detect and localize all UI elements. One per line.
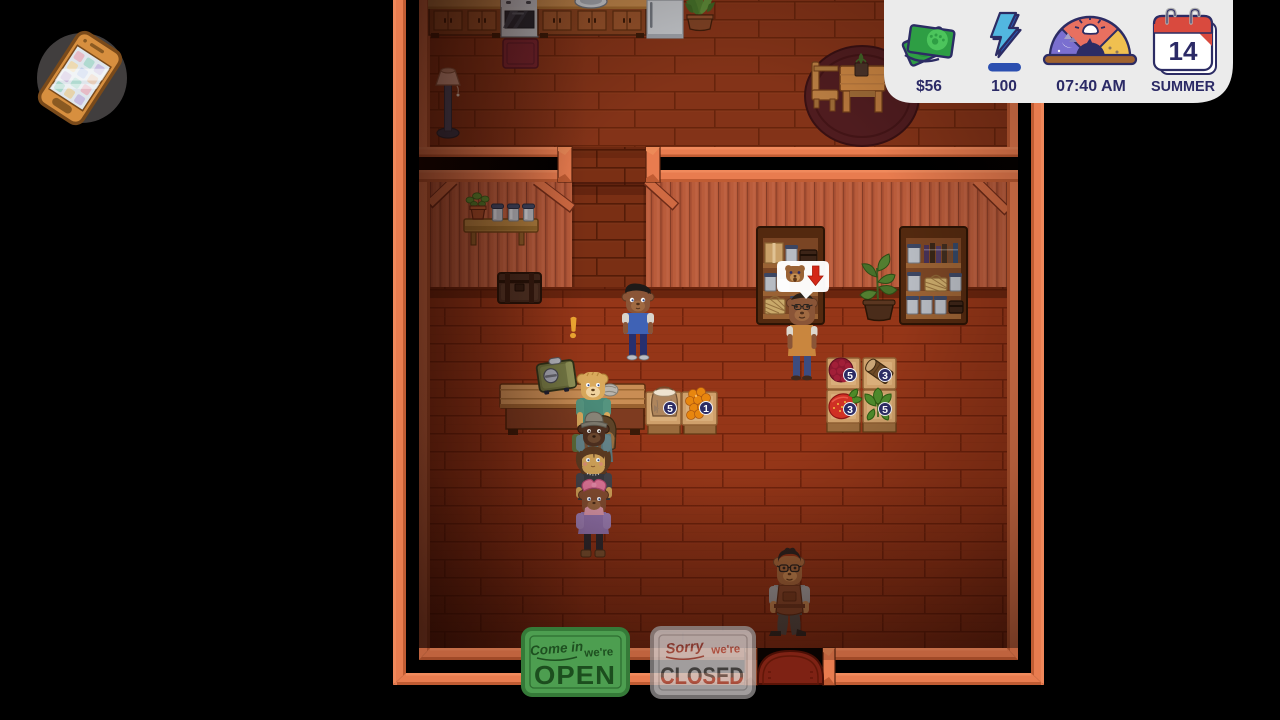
- svg-text:SUMMER: SUMMER: [1151, 79, 1216, 95]
- svg-text:07:40 AM: 07:40 AM: [1056, 78, 1126, 95]
- svg-text:Sorry: Sorry: [665, 638, 705, 657]
- svg-text:100: 100: [991, 78, 1017, 95]
- svg-text:OPEN: OPEN: [534, 660, 616, 690]
- svg-text:$56: $56: [916, 78, 942, 95]
- svg-text:14: 14: [1169, 36, 1198, 66]
- svg-text:we're: we're: [583, 646, 614, 660]
- svg-text:we're: we're: [710, 643, 741, 657]
